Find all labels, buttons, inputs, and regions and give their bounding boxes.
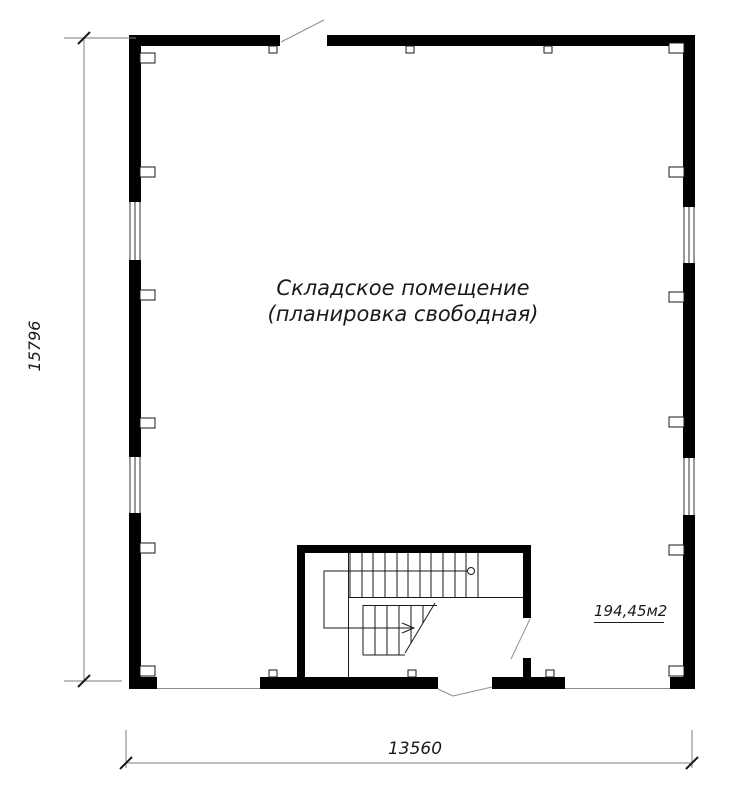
window-right-lower — [684, 458, 694, 515]
entry-door-bottom-swing — [438, 687, 492, 696]
window-right-upper — [684, 207, 694, 263]
dimension-vertical — [64, 32, 136, 687]
room-name: Складское помещение — [243, 275, 563, 301]
exterior-walls — [129, 35, 695, 689]
dimension-label-vertical: 15796 — [25, 306, 43, 386]
staircase — [348, 553, 523, 677]
stairwell-door-swing — [511, 619, 530, 659]
room-layout-note: (планировка свободная) — [243, 301, 563, 327]
dimension-label-horizontal: 13560 — [358, 739, 472, 759]
column-markers — [140, 43, 684, 677]
stairwell-walls — [297, 545, 531, 689]
window-left-upper — [130, 202, 140, 260]
window-left-lower — [130, 457, 140, 513]
room-label: Складское помещение (планировка свободна… — [243, 275, 563, 327]
floor-plan: Складское помещение (планировка свободна… — [0, 0, 743, 800]
floor-plan-drawing — [0, 0, 743, 800]
entry-door-top-swing — [281, 20, 324, 42]
area-label: 194,45м2 — [594, 602, 664, 623]
